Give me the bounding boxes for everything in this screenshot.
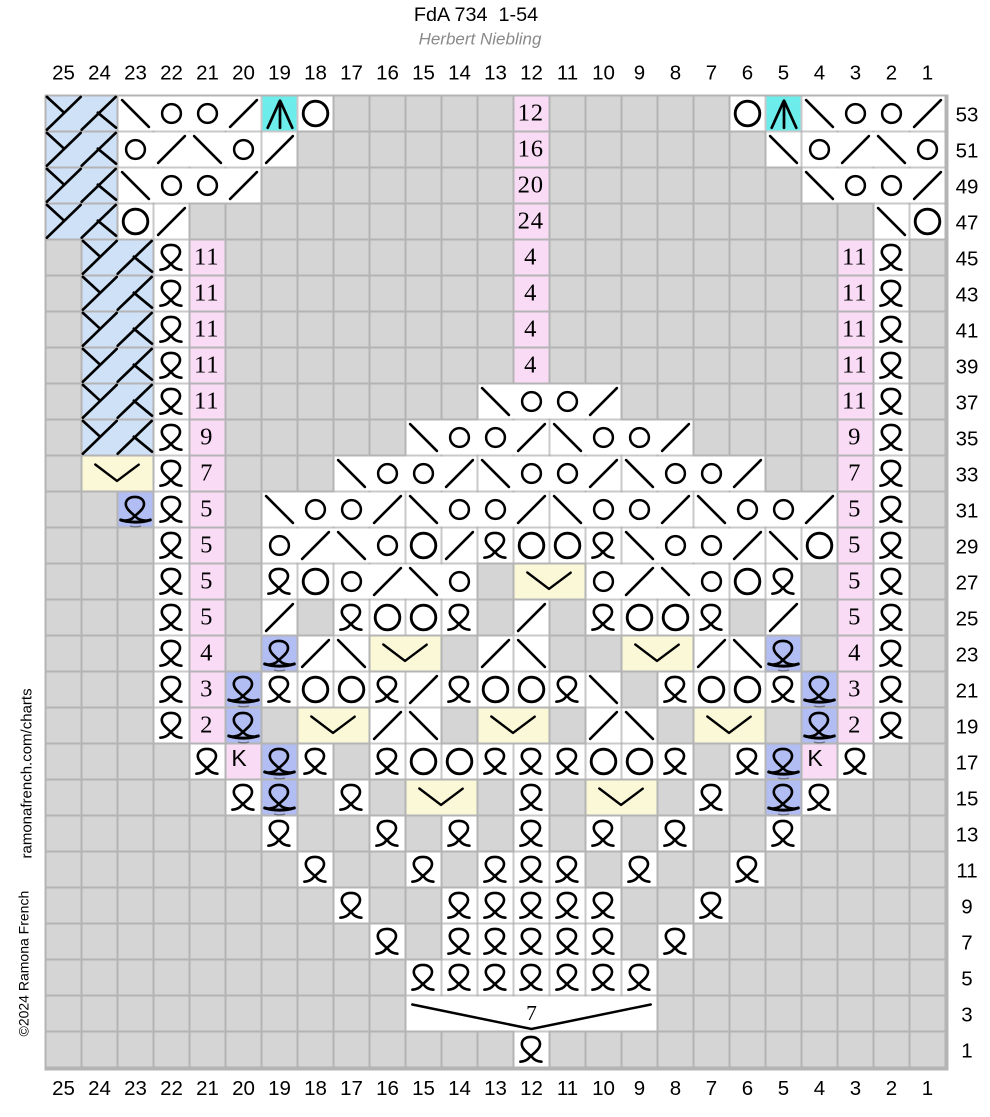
svg-text:2: 2	[886, 62, 897, 85]
svg-text:5: 5	[200, 531, 213, 558]
svg-text:11: 11	[842, 315, 867, 342]
svg-text:5: 5	[200, 567, 213, 594]
svg-text:35: 35	[956, 427, 979, 450]
svg-text:12: 12	[520, 62, 543, 85]
svg-text:22: 22	[160, 1077, 183, 1100]
svg-text:23: 23	[124, 62, 147, 85]
svg-text:4: 4	[200, 639, 213, 666]
svg-text:11: 11	[194, 243, 219, 270]
svg-text:19: 19	[956, 715, 979, 738]
svg-text:1: 1	[922, 62, 933, 85]
svg-text:39: 39	[956, 355, 979, 378]
svg-text:23: 23	[124, 1077, 147, 1100]
svg-text:15: 15	[412, 1077, 435, 1100]
svg-text:37: 37	[956, 391, 979, 414]
svg-text:51: 51	[956, 139, 979, 162]
svg-text:7: 7	[706, 1077, 717, 1100]
svg-text:2: 2	[886, 1077, 897, 1100]
svg-text:9: 9	[634, 62, 645, 85]
svg-text:3: 3	[848, 675, 861, 702]
svg-text:27: 27	[956, 571, 979, 594]
svg-text:2: 2	[200, 711, 213, 738]
svg-text:11: 11	[842, 243, 867, 270]
svg-text:3: 3	[850, 1077, 861, 1100]
svg-text:29: 29	[956, 535, 979, 558]
svg-text:11: 11	[842, 351, 867, 378]
svg-text:5: 5	[961, 967, 972, 990]
svg-text:4: 4	[524, 279, 537, 306]
svg-text:7: 7	[848, 459, 861, 486]
svg-text:13: 13	[956, 823, 979, 846]
svg-text:9: 9	[200, 423, 213, 450]
svg-text:12: 12	[518, 99, 544, 126]
svg-text:53: 53	[956, 103, 979, 126]
svg-text:31: 31	[956, 499, 979, 522]
svg-text:1: 1	[922, 1077, 933, 1100]
svg-text:17: 17	[340, 62, 363, 85]
svg-text:11: 11	[842, 387, 867, 414]
svg-text:9: 9	[961, 895, 972, 918]
svg-text:7: 7	[961, 931, 972, 954]
svg-text:5: 5	[848, 567, 861, 594]
svg-text:11: 11	[557, 62, 578, 85]
svg-text:5: 5	[848, 531, 861, 558]
svg-text:1: 1	[961, 1039, 972, 1062]
svg-text:15: 15	[412, 62, 435, 85]
svg-text:11: 11	[194, 315, 219, 342]
svg-text:11: 11	[557, 1077, 578, 1100]
svg-text:24: 24	[88, 1077, 111, 1100]
svg-text:5: 5	[200, 495, 213, 522]
svg-text:18: 18	[304, 1077, 327, 1100]
svg-text:19: 19	[268, 1077, 291, 1100]
svg-text:22: 22	[160, 62, 183, 85]
svg-text:6: 6	[742, 1077, 753, 1100]
svg-text:41: 41	[956, 319, 979, 342]
svg-text:20: 20	[232, 1077, 255, 1100]
svg-text:17: 17	[340, 1077, 363, 1100]
svg-text:K: K	[807, 745, 823, 771]
svg-text:Herbert Niebling: Herbert Niebling	[419, 30, 542, 49]
svg-text:3: 3	[200, 675, 213, 702]
svg-text:3: 3	[961, 1003, 972, 1026]
svg-text:25: 25	[52, 1077, 75, 1100]
svg-text:47: 47	[956, 211, 979, 234]
svg-text:18: 18	[304, 62, 327, 85]
svg-text:14: 14	[448, 1077, 471, 1100]
svg-text:5: 5	[200, 603, 213, 630]
svg-text:4: 4	[848, 639, 861, 666]
svg-text:19: 19	[268, 62, 291, 85]
svg-text:20: 20	[518, 171, 544, 198]
svg-text:8: 8	[670, 1077, 681, 1100]
svg-text:12: 12	[520, 1077, 543, 1100]
svg-text:7: 7	[706, 62, 717, 85]
svg-text:14: 14	[448, 62, 471, 85]
svg-text:7: 7	[200, 459, 213, 486]
svg-text:3: 3	[850, 62, 861, 85]
svg-text:13: 13	[484, 62, 507, 85]
svg-text:11: 11	[956, 859, 977, 882]
svg-text:4: 4	[524, 315, 537, 342]
svg-text:9: 9	[848, 423, 861, 450]
svg-text:16: 16	[518, 135, 544, 162]
svg-text:45: 45	[956, 247, 979, 270]
svg-text:25: 25	[956, 607, 979, 630]
svg-text:FdA 734 1-54: FdA 734 1-54	[414, 4, 538, 26]
svg-text:5: 5	[848, 603, 861, 630]
svg-text:©2024 Ramona French: ©2024 Ramona French	[16, 891, 32, 1037]
svg-text:23: 23	[956, 643, 979, 666]
svg-text:24: 24	[88, 62, 111, 85]
svg-text:11: 11	[842, 279, 867, 306]
svg-text:5: 5	[778, 62, 789, 85]
svg-text:5: 5	[778, 1077, 789, 1100]
svg-text:2: 2	[848, 711, 861, 738]
svg-text:33: 33	[956, 463, 979, 486]
svg-text:13: 13	[484, 1077, 507, 1100]
svg-text:11: 11	[194, 351, 219, 378]
svg-text:11: 11	[194, 387, 219, 414]
svg-text:ramonafrench.com/charts: ramonafrench.com/charts	[19, 688, 36, 858]
svg-text:4: 4	[524, 243, 537, 270]
svg-text:20: 20	[232, 62, 255, 85]
svg-text:5: 5	[848, 495, 861, 522]
svg-text:10: 10	[592, 1077, 615, 1100]
svg-text:16: 16	[376, 1077, 399, 1100]
svg-text:9: 9	[634, 1077, 645, 1100]
svg-text:10: 10	[592, 62, 615, 85]
svg-text:43: 43	[956, 283, 979, 306]
svg-text:16: 16	[376, 62, 399, 85]
svg-text:K: K	[231, 745, 247, 771]
svg-text:24: 24	[518, 207, 544, 234]
svg-text:11: 11	[194, 279, 219, 306]
svg-text:15: 15	[956, 787, 979, 810]
svg-text:7: 7	[526, 1001, 537, 1025]
svg-text:17: 17	[956, 751, 979, 774]
svg-text:8: 8	[670, 62, 681, 85]
svg-text:25: 25	[52, 62, 75, 85]
svg-text:21: 21	[196, 62, 219, 85]
svg-text:4: 4	[524, 351, 537, 378]
svg-text:4: 4	[814, 1077, 825, 1100]
svg-text:4: 4	[814, 62, 825, 85]
svg-text:6: 6	[742, 62, 753, 85]
svg-text:21: 21	[956, 679, 979, 702]
svg-text:49: 49	[956, 175, 979, 198]
svg-text:21: 21	[196, 1077, 219, 1100]
